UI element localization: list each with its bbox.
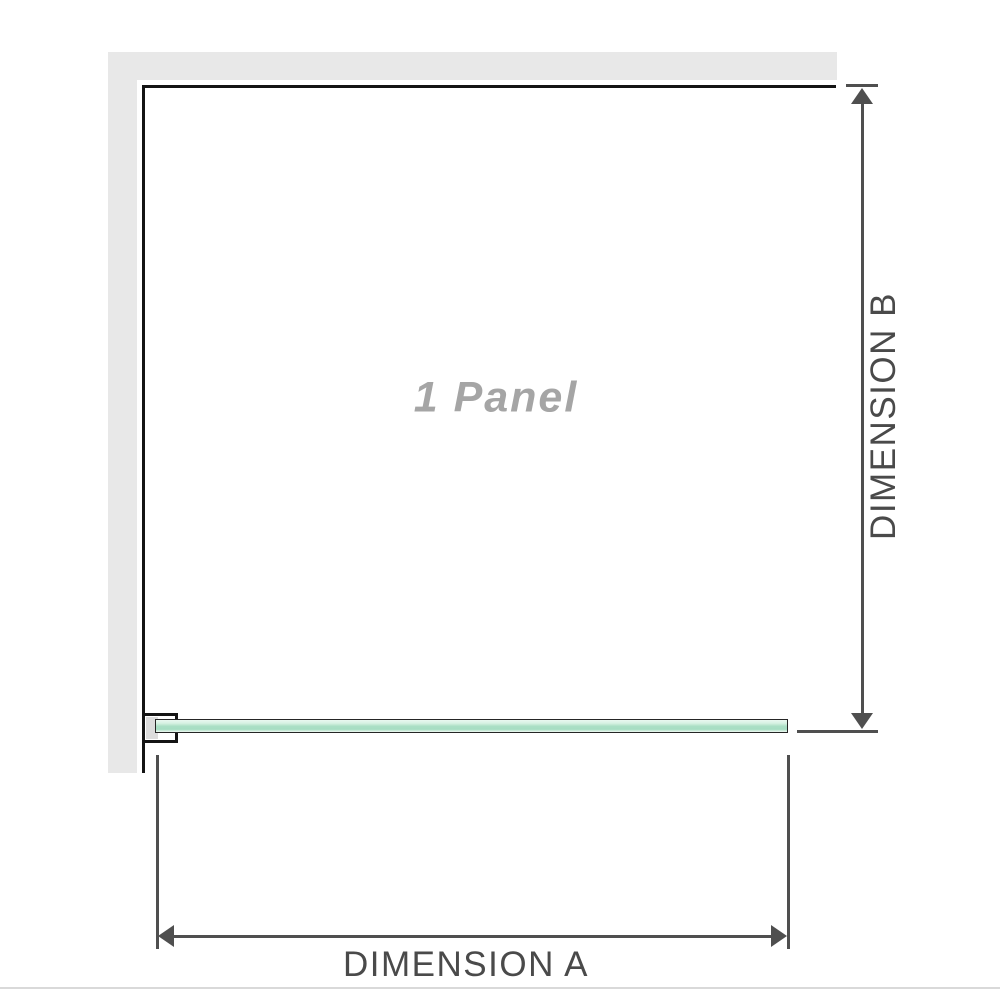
glass-panel [155, 719, 788, 733]
dimension-a-left-extension-line [156, 755, 159, 949]
wall-top [108, 52, 837, 80]
diagram-canvas: 1 Panel DIMENSION B DIMENSION A [0, 0, 1000, 1000]
wall-inner-edge-left-line [142, 85, 145, 773]
arrow-left-icon [158, 925, 174, 947]
dimension-a-label: DIMENSION A [343, 945, 589, 985]
dimension-a-line [168, 935, 778, 938]
dimension-a-right-extension-line [787, 755, 790, 949]
arrow-right-icon [771, 925, 787, 947]
dimension-b-label: DIMENSION B [864, 292, 904, 540]
dimension-b-bottom-tick [797, 730, 878, 733]
wall-left [108, 52, 137, 773]
arrow-down-icon [851, 713, 873, 729]
bottom-border-line [0, 987, 1000, 989]
dimension-b-top-tick [846, 84, 878, 87]
panel-count-label: 1 Panel [414, 374, 579, 423]
arrow-up-icon [851, 88, 873, 104]
wall-inner-edge-top-line [143, 85, 836, 88]
